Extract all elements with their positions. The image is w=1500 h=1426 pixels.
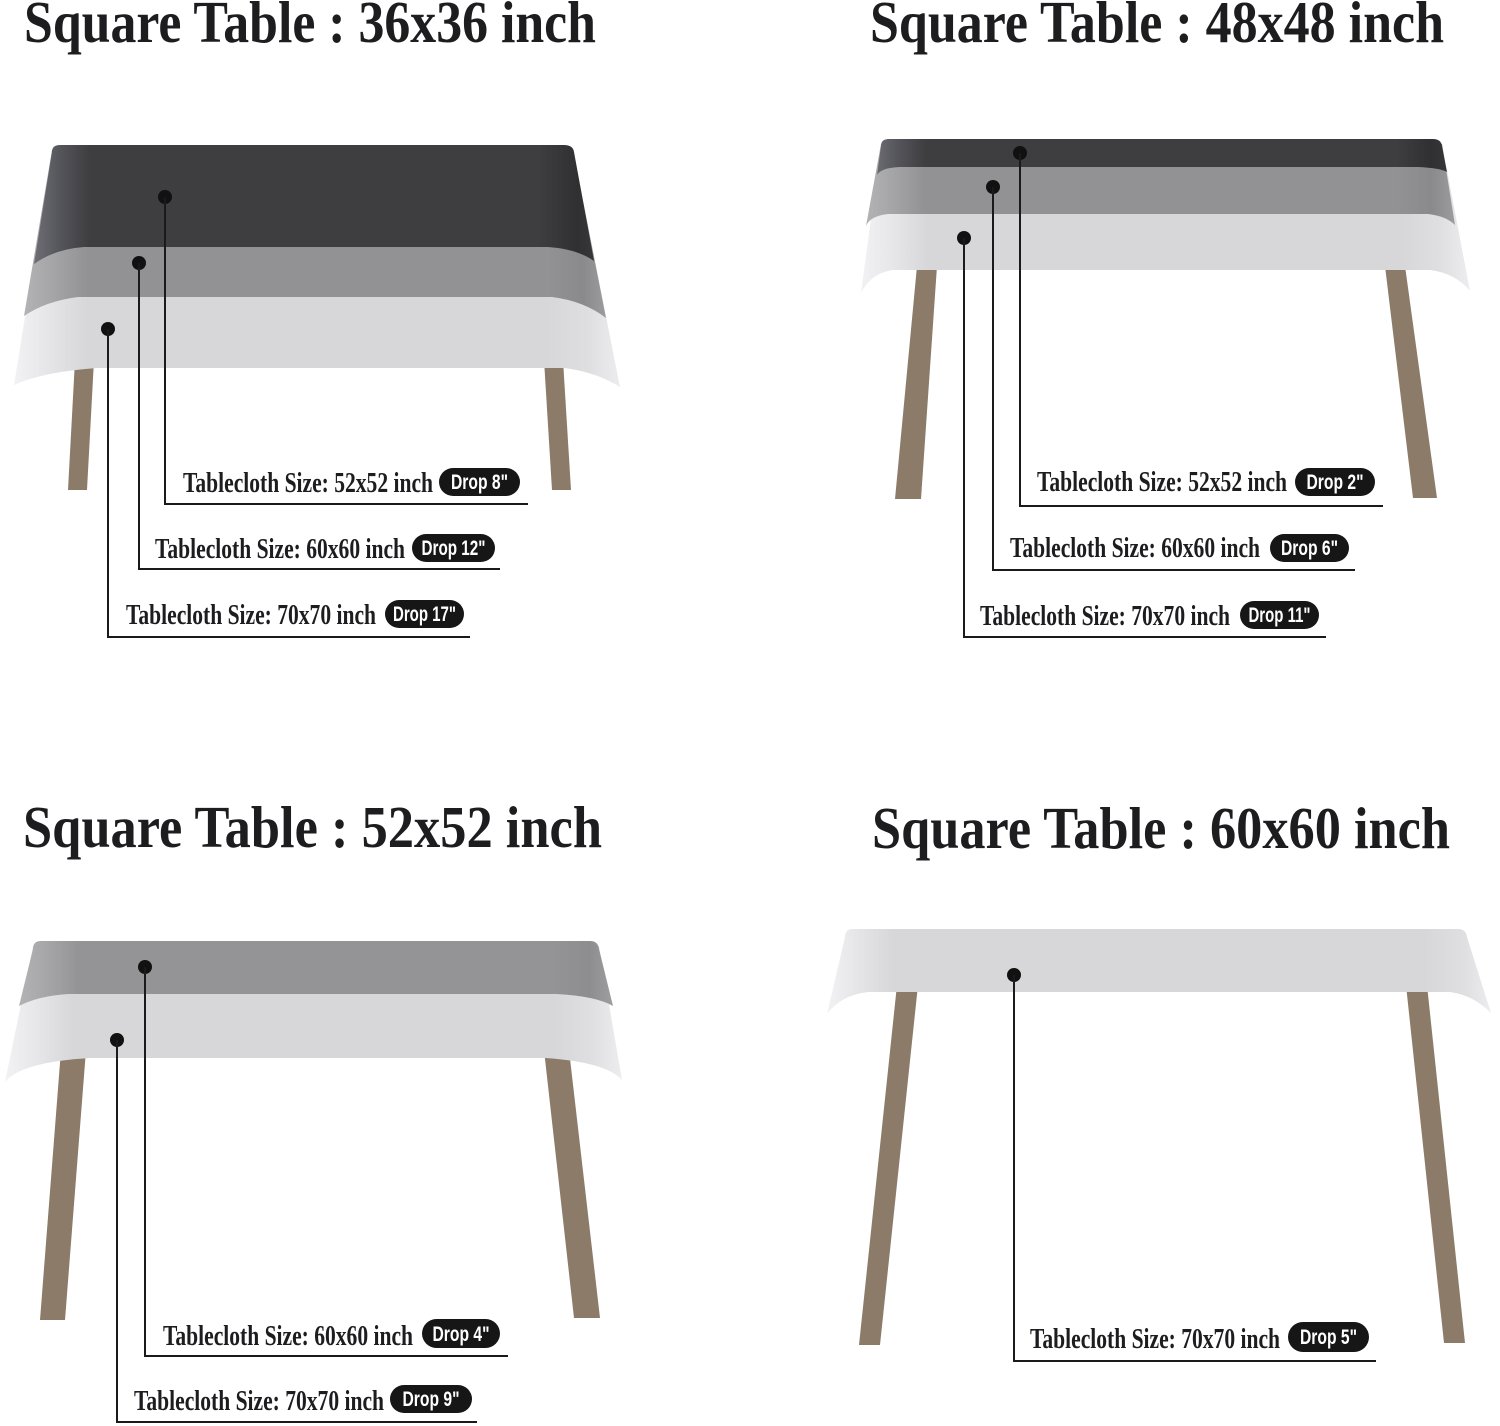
svg-text:Square Table : 36x36 inch: Square Table : 36x36 inch — [24, 0, 596, 55]
svg-text:Drop 17": Drop 17" — [393, 603, 456, 626]
svg-text:Tablecloth Size: 70x70 inch: Tablecloth Size: 70x70 inch — [126, 600, 376, 631]
svg-text:Tablecloth Size: 60x60 inch: Tablecloth Size: 60x60 inch — [155, 534, 405, 565]
svg-text:Tablecloth Size: 70x70 inch: Tablecloth Size: 70x70 inch — [1030, 1324, 1280, 1355]
svg-text:Drop 4": Drop 4" — [433, 1323, 490, 1346]
svg-text:Tablecloth Size: 70x70 inch: Tablecloth Size: 70x70 inch — [134, 1386, 384, 1417]
svg-text:Square Table : 48x48 inch: Square Table : 48x48 inch — [870, 0, 1444, 55]
svg-text:Drop 2": Drop 2" — [1307, 471, 1364, 494]
svg-text:Square Table : 60x60 inch: Square Table : 60x60 inch — [872, 795, 1450, 861]
svg-text:Drop 5": Drop 5" — [1300, 1326, 1357, 1349]
svg-text:Drop 6": Drop 6" — [1281, 537, 1338, 560]
svg-text:Tablecloth Size: 60x60 inch: Tablecloth Size: 60x60 inch — [163, 1321, 413, 1352]
svg-text:Drop 8": Drop 8" — [451, 471, 508, 494]
svg-text:Square Table : 52x52 inch: Square Table : 52x52 inch — [23, 794, 602, 860]
svg-text:Tablecloth Size: 52x52 inch: Tablecloth Size: 52x52 inch — [183, 468, 433, 499]
svg-text:Tablecloth Size: 60x60 inch: Tablecloth Size: 60x60 inch — [1010, 533, 1260, 564]
svg-text:Tablecloth Size: 52x52 inch: Tablecloth Size: 52x52 inch — [1037, 467, 1287, 498]
svg-text:Drop 12": Drop 12" — [422, 537, 486, 560]
svg-text:Tablecloth Size: 70x70 inch: Tablecloth Size: 70x70 inch — [980, 601, 1230, 632]
svg-text:Drop 9": Drop 9" — [403, 1388, 460, 1411]
svg-text:Drop 11": Drop 11" — [1249, 604, 1311, 627]
